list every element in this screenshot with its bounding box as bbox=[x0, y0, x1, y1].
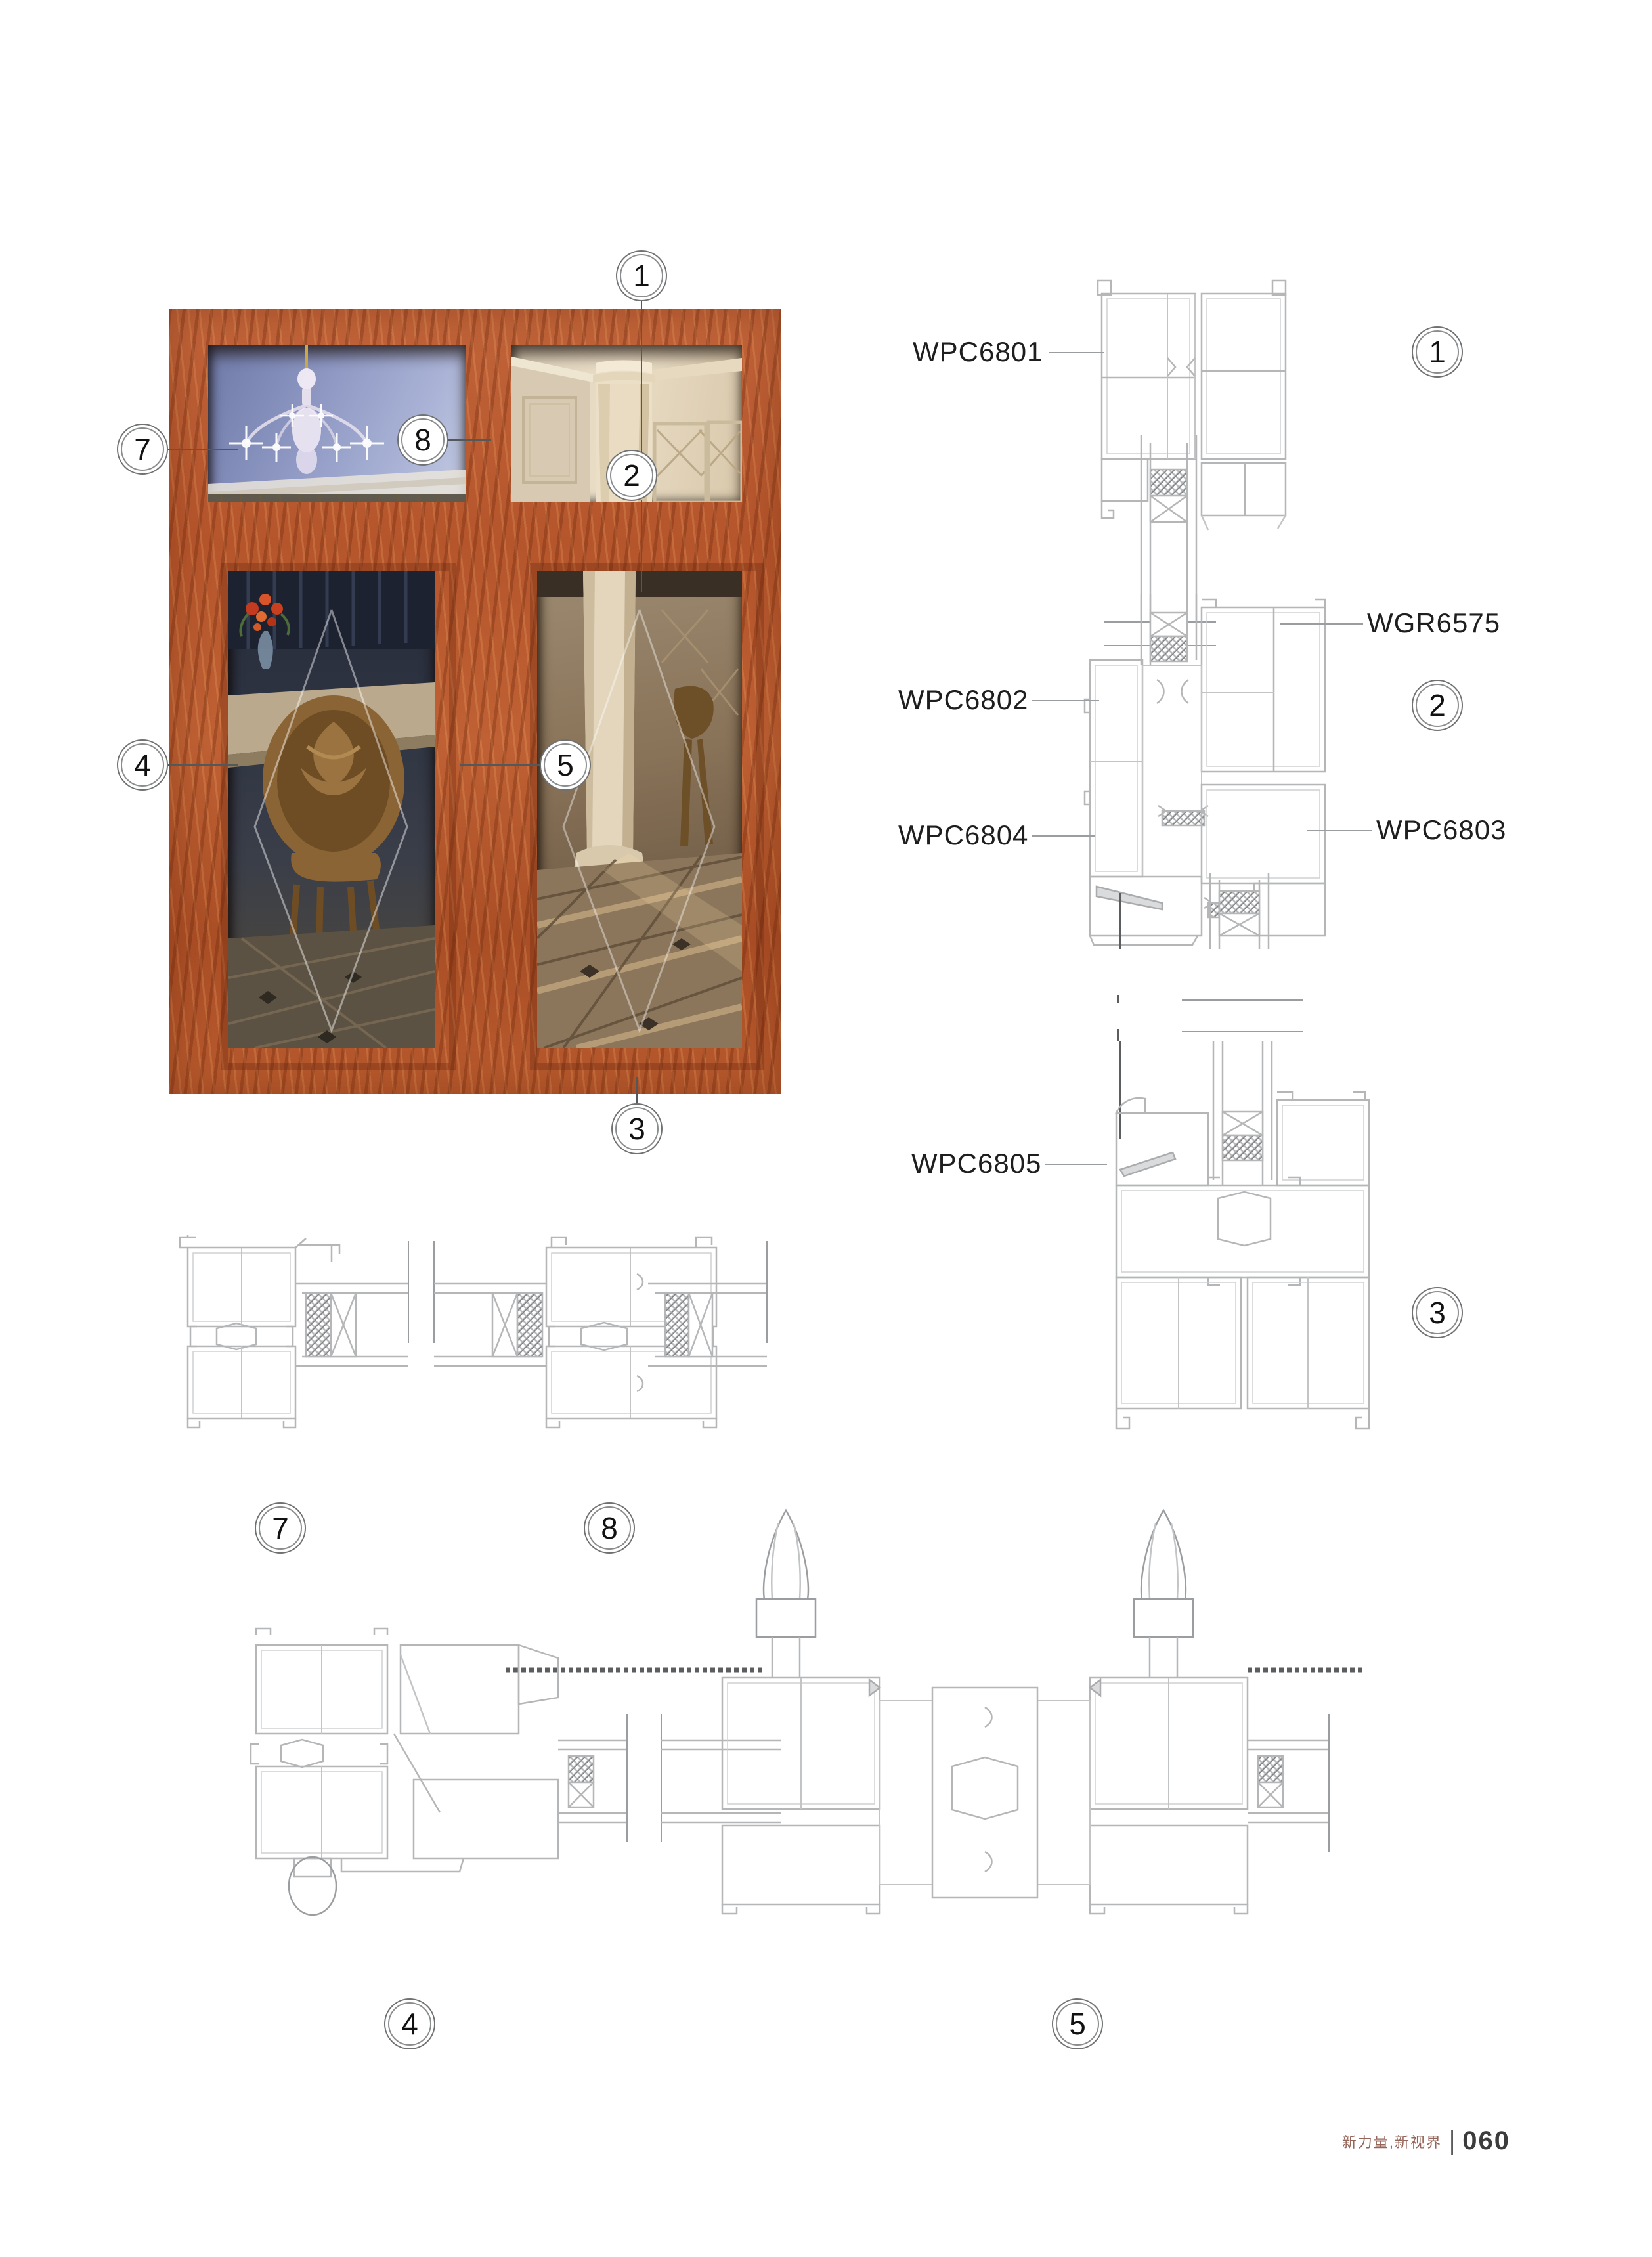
leader-callout-5 bbox=[460, 764, 542, 766]
part-label-wpc6803: WPC6803 bbox=[1376, 814, 1506, 846]
detail-circle-2: 2 bbox=[1412, 680, 1463, 731]
glass-unit bbox=[295, 1284, 408, 1366]
glass-unit bbox=[1210, 873, 1269, 949]
leader-callout-7 bbox=[166, 449, 238, 450]
detail-circle-3: 3 bbox=[1412, 1287, 1463, 1338]
profile-2-drawing bbox=[1083, 594, 1372, 949]
part-label-wpc6801: WPC6801 bbox=[913, 336, 1043, 368]
part-label-wpc6805: WPC6805 bbox=[911, 1148, 1041, 1179]
callout-number: 2 bbox=[623, 460, 640, 491]
footer-page-number: 060 bbox=[1462, 2126, 1510, 2156]
footer-slogan: 新力量,新视界 bbox=[1342, 2131, 1442, 2152]
glass-unit bbox=[434, 1284, 546, 1366]
section-circle-8: 8 bbox=[584, 1502, 635, 1554]
callout-number: 8 bbox=[414, 425, 431, 455]
window-handle bbox=[1134, 1510, 1193, 1678]
glass-unit bbox=[1213, 1041, 1272, 1185]
leader-callout-1 bbox=[641, 301, 642, 452]
leader-wgr6575 bbox=[1280, 623, 1363, 625]
callout-number: 2 bbox=[1429, 690, 1446, 720]
pane-bottom-left-interior bbox=[228, 571, 435, 1048]
leader-callout-2 bbox=[641, 500, 642, 592]
callout-number: 3 bbox=[1429, 1298, 1446, 1328]
callout-number: 5 bbox=[557, 750, 574, 780]
callout-number: 7 bbox=[134, 434, 151, 464]
callout-circle-2: 2 bbox=[606, 450, 657, 501]
footer-divider: | bbox=[1450, 2126, 1454, 2156]
glass-unit bbox=[648, 1284, 767, 1366]
part-label-wpc6802: WPC6802 bbox=[898, 684, 1028, 716]
callout-number: 5 bbox=[1069, 2009, 1086, 2039]
part-label-wpc6804: WPC6804 bbox=[898, 820, 1028, 851]
pane-bottom-right-interior bbox=[537, 571, 742, 1048]
callout-number: 1 bbox=[633, 261, 650, 291]
callout-number: 3 bbox=[628, 1114, 645, 1144]
detail-circle-1: 1 bbox=[1412, 326, 1463, 378]
break-lines-2-3 bbox=[1087, 995, 1303, 1041]
leader-callout-8 bbox=[446, 439, 491, 441]
callout-circle-5: 5 bbox=[540, 739, 591, 791]
callout-circle-3: 3 bbox=[611, 1103, 663, 1154]
sections-7-8-drawing bbox=[177, 1235, 946, 1432]
interior-floor-art bbox=[537, 571, 742, 1048]
callout-number: 4 bbox=[401, 2009, 418, 2039]
callout-circle-4: 4 bbox=[117, 739, 168, 791]
catalog-page: 1 7 8 2 4 5 3 bbox=[0, 0, 1652, 2257]
callout-circle-7: 7 bbox=[117, 424, 168, 475]
handle-knob bbox=[289, 1857, 336, 1915]
callout-circle-8: 8 bbox=[397, 414, 448, 466]
page-footer: 新力量,新视界 | 060 bbox=[1342, 2126, 1510, 2156]
section-5-drawing bbox=[657, 1484, 1379, 1931]
window-handle bbox=[756, 1510, 815, 1678]
leader-wpc6805 bbox=[1045, 1164, 1107, 1165]
part-label-wgr6575: WGR6575 bbox=[1367, 607, 1500, 639]
leader-wpc6803 bbox=[1307, 830, 1372, 831]
leader-callout-4 bbox=[166, 764, 238, 766]
callout-number: 4 bbox=[134, 750, 151, 780]
callout-circle-1: 1 bbox=[616, 250, 667, 301]
leader-callout-3 bbox=[636, 1077, 638, 1105]
section-circle-5: 5 bbox=[1052, 1998, 1103, 2049]
callout-number: 1 bbox=[1429, 337, 1446, 367]
leader-wpc6804 bbox=[1032, 835, 1095, 837]
glass-unit bbox=[1141, 594, 1196, 665]
callout-number: 8 bbox=[601, 1513, 618, 1543]
section-circle-4: 4 bbox=[384, 1998, 435, 2049]
glass-unit bbox=[1141, 435, 1196, 621]
leader-wpc6802 bbox=[1032, 700, 1099, 701]
callout-number: 7 bbox=[272, 1513, 289, 1543]
section-circle-7: 7 bbox=[255, 1502, 306, 1554]
profile-3-drawing bbox=[1110, 1041, 1379, 1461]
leader-wpc6801 bbox=[1049, 352, 1104, 353]
window-product-photo bbox=[169, 309, 781, 1094]
glass-unit bbox=[1248, 1740, 1329, 1822]
interior-art bbox=[228, 571, 435, 1048]
glass-unit bbox=[558, 1740, 627, 1822]
thermal-break-bolt bbox=[1158, 806, 1208, 825]
